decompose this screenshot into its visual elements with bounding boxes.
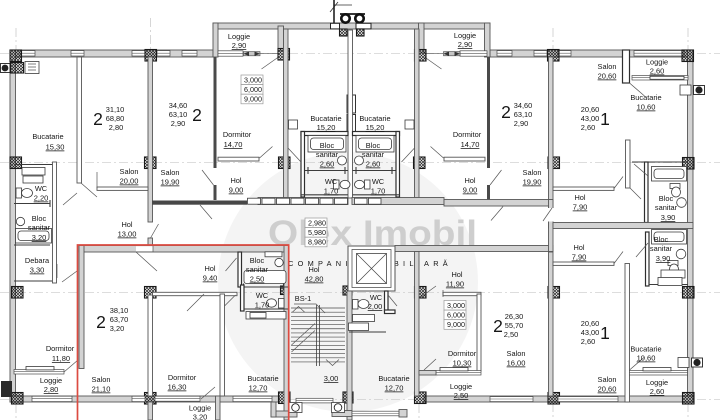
svg-text:20,60: 20,60 <box>581 319 600 328</box>
svg-text:55,70: 55,70 <box>505 321 524 330</box>
svg-text:6,000: 6,000 <box>244 85 262 94</box>
svg-text:43,00: 43,00 <box>581 328 600 337</box>
svg-text:9,00: 9,00 <box>463 186 478 195</box>
svg-text:3,20: 3,20 <box>32 233 47 242</box>
svg-text:2,60: 2,60 <box>320 160 335 169</box>
svg-text:2,60: 2,60 <box>650 387 665 396</box>
svg-text:1: 1 <box>600 323 610 343</box>
svg-text:sanitar: sanitar <box>316 150 339 159</box>
svg-text:2,50: 2,50 <box>250 275 265 284</box>
svg-text:13,00: 13,00 <box>118 230 137 239</box>
svg-text:2: 2 <box>93 109 103 129</box>
svg-text:Dormitor: Dormitor <box>448 349 477 358</box>
svg-text:2,80: 2,80 <box>109 123 123 132</box>
svg-text:10,60: 10,60 <box>637 354 656 363</box>
svg-text:3,20: 3,20 <box>193 413 208 420</box>
svg-text:Bucatarie: Bucatarie <box>32 132 63 141</box>
svg-text:Salon: Salon <box>120 167 139 176</box>
svg-text:Hol: Hol <box>573 243 584 252</box>
svg-text:42,80: 42,80 <box>305 275 324 284</box>
svg-text:11,90: 11,90 <box>446 280 464 289</box>
svg-text:20,60: 20,60 <box>598 72 617 81</box>
svg-text:Debara: Debara <box>25 256 50 265</box>
svg-text:Dormitor: Dormitor <box>46 344 75 353</box>
svg-text:Bucatarie: Bucatarie <box>247 374 278 383</box>
svg-text:34,60: 34,60 <box>514 101 533 110</box>
svg-text:Hol: Hol <box>464 176 475 185</box>
svg-text:Hol: Hol <box>204 264 215 273</box>
svg-text:2: 2 <box>192 105 202 125</box>
svg-text:Bloc: Bloc <box>320 141 335 150</box>
svg-text:Salon: Salon <box>523 168 542 177</box>
svg-text:Hol: Hol <box>574 193 585 202</box>
svg-text:38,10: 38,10 <box>110 306 129 315</box>
svg-text:Bloc: Bloc <box>250 256 265 265</box>
svg-text:16,00: 16,00 <box>507 359 526 368</box>
svg-text:1,70: 1,70 <box>324 187 339 196</box>
svg-text:Bucatarie: Bucatarie <box>630 345 661 354</box>
svg-text:10,30: 10,30 <box>453 359 472 368</box>
svg-text:Loggie: Loggie <box>646 378 668 387</box>
svg-text:Bloc: Bloc <box>32 214 47 223</box>
svg-text:15,20: 15,20 <box>317 123 336 132</box>
svg-text:12,70: 12,70 <box>385 384 404 393</box>
svg-text:2,80: 2,80 <box>44 385 59 394</box>
svg-text:3,000: 3,000 <box>447 301 465 310</box>
svg-text:3,000: 3,000 <box>244 75 262 84</box>
svg-text:Loggie: Loggie <box>450 382 472 391</box>
svg-text:14,70: 14,70 <box>461 140 480 149</box>
svg-text:10,60: 10,60 <box>637 103 656 112</box>
svg-text:20,60: 20,60 <box>581 105 600 114</box>
svg-text:16,30: 16,30 <box>168 383 187 392</box>
svg-text:WC: WC <box>372 177 385 186</box>
svg-text:Loggie: Loggie <box>454 31 476 40</box>
svg-text:Dormitor: Dormitor <box>453 130 482 139</box>
svg-text:Bucatarie: Bucatarie <box>378 374 409 383</box>
svg-text:Hol: Hol <box>230 176 241 185</box>
svg-text:sanitar: sanitar <box>362 150 385 159</box>
svg-text:Hol: Hol <box>121 220 132 229</box>
svg-text:2,90: 2,90 <box>232 41 247 50</box>
svg-text:2,60: 2,60 <box>581 337 595 346</box>
svg-text:sanitar: sanitar <box>28 223 51 232</box>
svg-text:9,000: 9,000 <box>244 95 262 104</box>
svg-text:WC: WC <box>370 293 383 302</box>
svg-text:9,00: 9,00 <box>229 186 244 195</box>
svg-text:Hol: Hol <box>451 270 462 279</box>
svg-text:3,20: 3,20 <box>110 324 124 333</box>
svg-text:19,90: 19,90 <box>523 178 542 187</box>
svg-text:Bloc: Bloc <box>659 194 674 203</box>
svg-text:Bloc: Bloc <box>366 141 381 150</box>
svg-text:1,70: 1,70 <box>371 187 386 196</box>
svg-text:sanitar: sanitar <box>655 203 678 212</box>
svg-text:Hol: Hol <box>308 265 319 274</box>
svg-text:Bucatarie: Bucatarie <box>630 93 661 102</box>
svg-text:Loggie: Loggie <box>40 376 62 385</box>
svg-text:2: 2 <box>96 312 106 332</box>
svg-text:Bucatarie: Bucatarie <box>359 114 390 123</box>
svg-text:3,00: 3,00 <box>324 374 339 383</box>
svg-text:34,60: 34,60 <box>169 101 188 110</box>
svg-text:6,000: 6,000 <box>447 311 465 320</box>
svg-text:14,70: 14,70 <box>224 140 243 149</box>
svg-text:63,10: 63,10 <box>514 110 533 119</box>
svg-text:63,70: 63,70 <box>110 315 129 324</box>
svg-text:9,40: 9,40 <box>203 274 218 283</box>
svg-text:15,30: 15,30 <box>46 143 65 152</box>
svg-text:12,70: 12,70 <box>249 384 268 393</box>
svg-text:2,20: 2,20 <box>34 194 49 203</box>
svg-text:19,90: 19,90 <box>161 178 180 187</box>
svg-text:WC: WC <box>35 184 48 193</box>
svg-text:Salon: Salon <box>598 375 617 384</box>
svg-text:15,20: 15,20 <box>366 123 385 132</box>
svg-text:2,90: 2,90 <box>171 119 185 128</box>
svg-text:2,980: 2,980 <box>308 218 326 227</box>
svg-text:Salon: Salon <box>92 375 111 384</box>
svg-text:Salon: Salon <box>598 62 617 71</box>
svg-text:2,50: 2,50 <box>454 391 469 400</box>
svg-text:9,000: 9,000 <box>447 320 465 329</box>
svg-text:20,00: 20,00 <box>120 177 139 186</box>
svg-text:WC: WC <box>256 291 269 300</box>
svg-text:26,30: 26,30 <box>505 312 524 321</box>
svg-text:5,980: 5,980 <box>308 228 326 237</box>
svg-text:2,60: 2,60 <box>581 123 595 132</box>
svg-text:2,60: 2,60 <box>366 160 381 169</box>
svg-text:Bloc: Bloc <box>654 235 669 244</box>
svg-text:63,10: 63,10 <box>169 110 188 119</box>
svg-text:Loggie: Loggie <box>189 404 211 413</box>
svg-text:2: 2 <box>493 316 503 336</box>
svg-text:Loggie: Loggie <box>228 32 250 41</box>
svg-text:2: 2 <box>501 102 511 122</box>
svg-text:11,80: 11,80 <box>52 354 70 363</box>
svg-text:BS-1: BS-1 <box>295 294 311 303</box>
svg-text:3,30: 3,30 <box>30 266 45 275</box>
svg-text:3,90: 3,90 <box>656 254 671 263</box>
svg-text:43,00: 43,00 <box>581 114 600 123</box>
svg-text:2,90: 2,90 <box>458 40 473 49</box>
svg-text:2,60: 2,60 <box>650 67 665 76</box>
svg-text:31,10: 31,10 <box>106 105 125 114</box>
svg-text:7,90: 7,90 <box>573 203 588 212</box>
svg-text:Bucatarie: Bucatarie <box>310 114 341 123</box>
svg-text:Loggie: Loggie <box>646 58 668 67</box>
svg-text:sanitar: sanitar <box>246 265 269 274</box>
svg-text:2,00: 2,00 <box>368 302 383 311</box>
svg-text:Dormitor: Dormitor <box>168 373 197 382</box>
svg-text:sanitar: sanitar <box>650 244 673 253</box>
svg-text:8,980: 8,980 <box>308 238 326 247</box>
svg-text:Salon: Salon <box>507 349 526 358</box>
svg-text:21,10: 21,10 <box>92 385 111 394</box>
svg-text:2,50: 2,50 <box>504 330 518 339</box>
svg-text:WC: WC <box>325 177 338 186</box>
svg-text:68,80: 68,80 <box>106 114 125 123</box>
svg-text:20,60: 20,60 <box>598 385 617 394</box>
svg-text:7,90: 7,90 <box>572 253 587 262</box>
svg-text:1,70: 1,70 <box>255 301 270 310</box>
svg-text:3,90: 3,90 <box>661 213 676 222</box>
svg-text:Dormitor: Dormitor <box>223 130 252 139</box>
svg-text:2,90: 2,90 <box>514 119 528 128</box>
svg-text:1: 1 <box>600 109 610 129</box>
svg-text:Salon: Salon <box>161 168 180 177</box>
